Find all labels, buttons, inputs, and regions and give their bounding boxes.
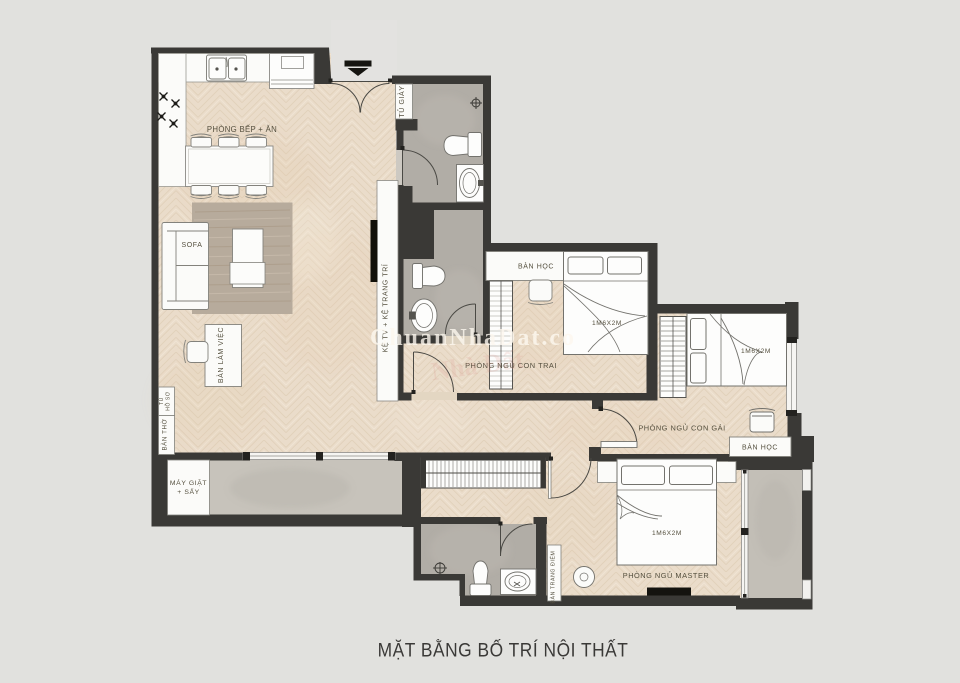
svg-text:MẶT BẰNG BỐ TRÍ NỘI THẤT: MẶT BẰNG BỐ TRÍ NỘI THẤT — [378, 639, 629, 661]
svg-text:BÀN HỌC: BÀN HỌC — [518, 262, 554, 271]
svg-text:ChuanNhaDat.co: ChuanNhaDat.co — [370, 325, 576, 351]
svg-text:SOFA: SOFA — [181, 242, 202, 249]
svg-text:TỦ GIÀY: TỦ GIÀY — [397, 85, 406, 117]
svg-text:TỦ: TỦ — [158, 397, 165, 405]
svg-text:BÀN HỌC: BÀN HỌC — [742, 443, 778, 452]
svg-text:BÀN LÀM VIỆC: BÀN LÀM VIỆC — [216, 327, 225, 383]
svg-text:1M6X2M: 1M6X2M — [652, 530, 682, 537]
svg-text:BÀN TRANG ĐIỂM: BÀN TRANG ĐIỂM — [550, 551, 557, 604]
svg-text:MÁY GIẶT: MÁY GIẶT — [170, 478, 207, 487]
svg-text:PHÒNG NGỦ MASTER: PHÒNG NGỦ MASTER — [623, 571, 709, 580]
svg-text:PHÒNG BẾP + ĂN: PHÒNG BẾP + ĂN — [207, 124, 277, 134]
svg-text:1M6X2M: 1M6X2M — [741, 348, 771, 355]
svg-text:1M6X2M: 1M6X2M — [592, 320, 622, 327]
svg-text:HỒ SƠ: HỒ SƠ — [165, 391, 172, 411]
svg-text:PHÒNG NGỦ CON GÁI: PHÒNG NGỦ CON GÁI — [638, 424, 725, 433]
svg-text:BÀN THỜ: BÀN THỜ — [162, 418, 169, 450]
